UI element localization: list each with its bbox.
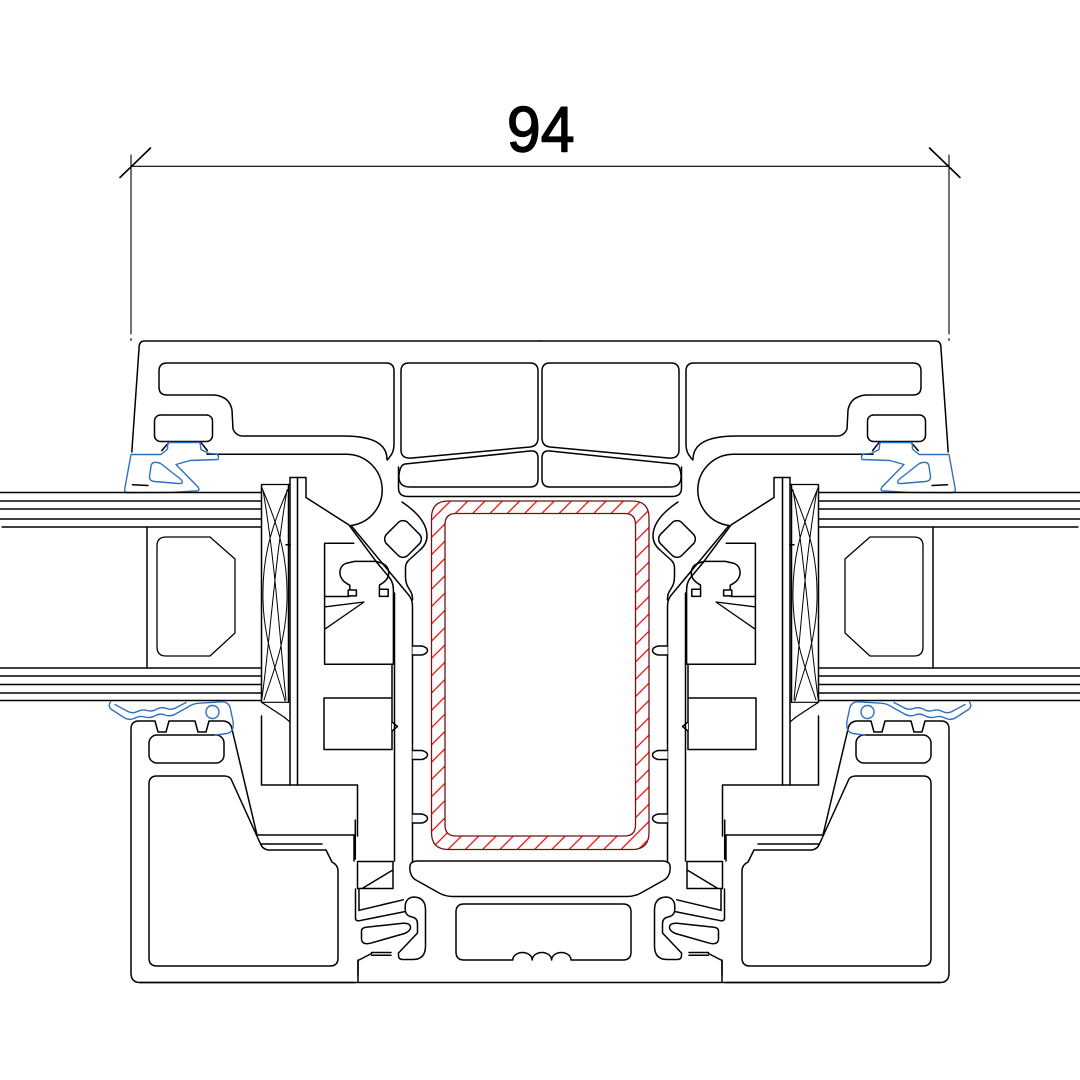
svg-text:94: 94 — [507, 94, 575, 166]
